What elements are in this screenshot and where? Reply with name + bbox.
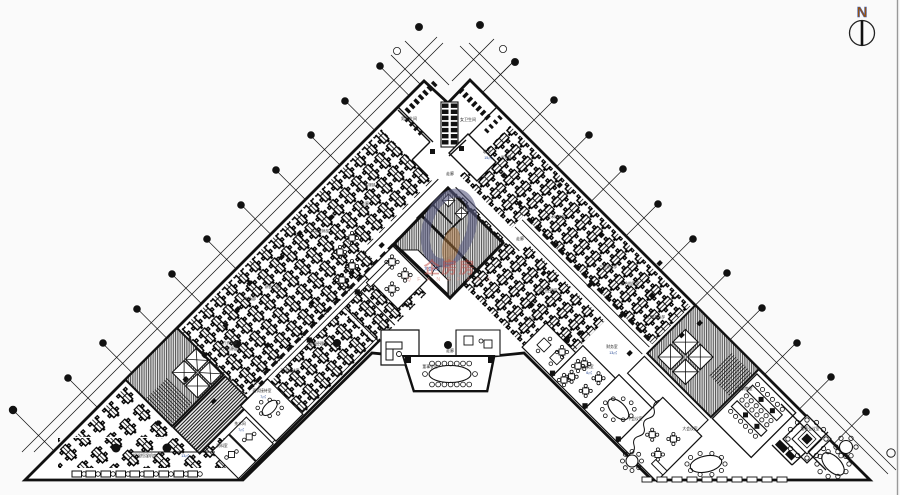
svg-text:走廊: 走廊 <box>446 347 454 353</box>
svg-text:7㎡: 7㎡ <box>260 394 266 399</box>
svg-text:走廊: 走廊 <box>516 235 524 241</box>
svg-text:男卫生间: 男卫生间 <box>401 115 417 121</box>
svg-text:市场营销部: 市场营销部 <box>311 228 329 233</box>
svg-text:大会议室: 大会议室 <box>682 426 697 431</box>
svg-text:企房房: 企房房 <box>423 258 477 277</box>
svg-text:13㎡: 13㎡ <box>181 453 189 458</box>
svg-text:7㎡: 7㎡ <box>238 427 244 432</box>
svg-text:销售二部: 销售二部 <box>265 284 280 289</box>
svg-text:市场部: 市场部 <box>244 295 256 301</box>
svg-text:收发: 收发 <box>483 148 491 154</box>
svg-text:走廊: 走廊 <box>446 170 454 176</box>
svg-text:15㎡: 15㎡ <box>484 155 492 160</box>
svg-text:培训教室: 培训教室 <box>737 386 752 391</box>
svg-text:综合档案室: 综合档案室 <box>621 281 640 286</box>
svg-text:女卫生间: 女卫生间 <box>460 116 476 122</box>
svg-text:走廊: 走廊 <box>361 200 369 206</box>
svg-text:N: N <box>857 4 868 21</box>
svg-text:工程事业部: 工程事业部 <box>647 314 665 319</box>
svg-text:中会议室: 中会议室 <box>627 416 642 421</box>
svg-text:产品设计部: 产品设计部 <box>599 264 617 269</box>
svg-text:客服部: 客服部 <box>365 182 376 187</box>
svg-text:人力资源部: 人力资源部 <box>218 345 238 351</box>
svg-text:恒温恒湿机房: 恒温恒湿机房 <box>133 452 157 458</box>
svg-text:洽谈室: 洽谈室 <box>582 364 594 369</box>
svg-text:人力资源部: 人力资源部 <box>219 340 237 345</box>
svg-text:董事长室: 董事长室 <box>422 364 437 369</box>
svg-text:面试接待室: 面试接待室 <box>281 368 300 373</box>
svg-text:运营部: 运营部 <box>501 154 512 159</box>
svg-text:董事会议室: 董事会议室 <box>801 426 820 431</box>
svg-text:技术研发部: 技术研发部 <box>547 214 565 219</box>
svg-text:高级经理室: 高级经理室 <box>309 341 328 346</box>
svg-text:13㎡: 13㎡ <box>609 350 617 355</box>
svg-text:茶水间: 茶水间 <box>234 421 246 426</box>
svg-text:资料室: 资料室 <box>216 443 228 448</box>
svg-text:面试接待室: 面试接待室 <box>253 388 272 393</box>
svg-text:部门经理室: 部门经理室 <box>539 288 558 293</box>
svg-text:休息区: 休息区 <box>524 316 536 321</box>
svg-text:6㎡: 6㎡ <box>586 370 592 375</box>
svg-text:财务室: 财务室 <box>606 344 618 349</box>
svg-text:Q F A N G F A N G: Q F A N G F A N G <box>407 277 494 283</box>
